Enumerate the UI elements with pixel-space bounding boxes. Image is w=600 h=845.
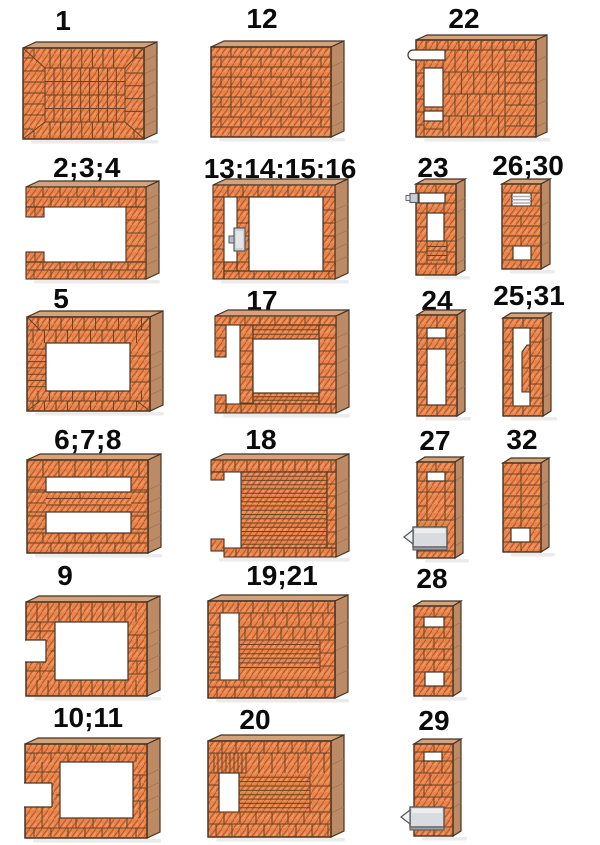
svg-text:5: 5: [53, 283, 69, 314]
svg-text:9: 9: [57, 560, 73, 591]
svg-text:6;7;8: 6;7;8: [54, 424, 122, 455]
svg-text:2;3;4: 2;3;4: [53, 152, 121, 183]
svg-text:25;31: 25;31: [493, 280, 565, 311]
svg-text:28: 28: [416, 563, 447, 594]
svg-text:27: 27: [419, 425, 450, 456]
svg-text:19;21: 19;21: [246, 560, 318, 591]
svg-text:32: 32: [506, 424, 537, 455]
svg-text:23: 23: [417, 152, 448, 183]
svg-text:22: 22: [448, 3, 479, 34]
svg-text:29: 29: [418, 705, 449, 736]
svg-text:10;11: 10;11: [53, 702, 123, 733]
svg-text:18: 18: [245, 424, 276, 455]
svg-text:26;30: 26;30: [492, 150, 564, 181]
svg-text:1: 1: [55, 5, 71, 36]
svg-text:20: 20: [239, 704, 270, 735]
svg-text:12: 12: [246, 3, 277, 34]
